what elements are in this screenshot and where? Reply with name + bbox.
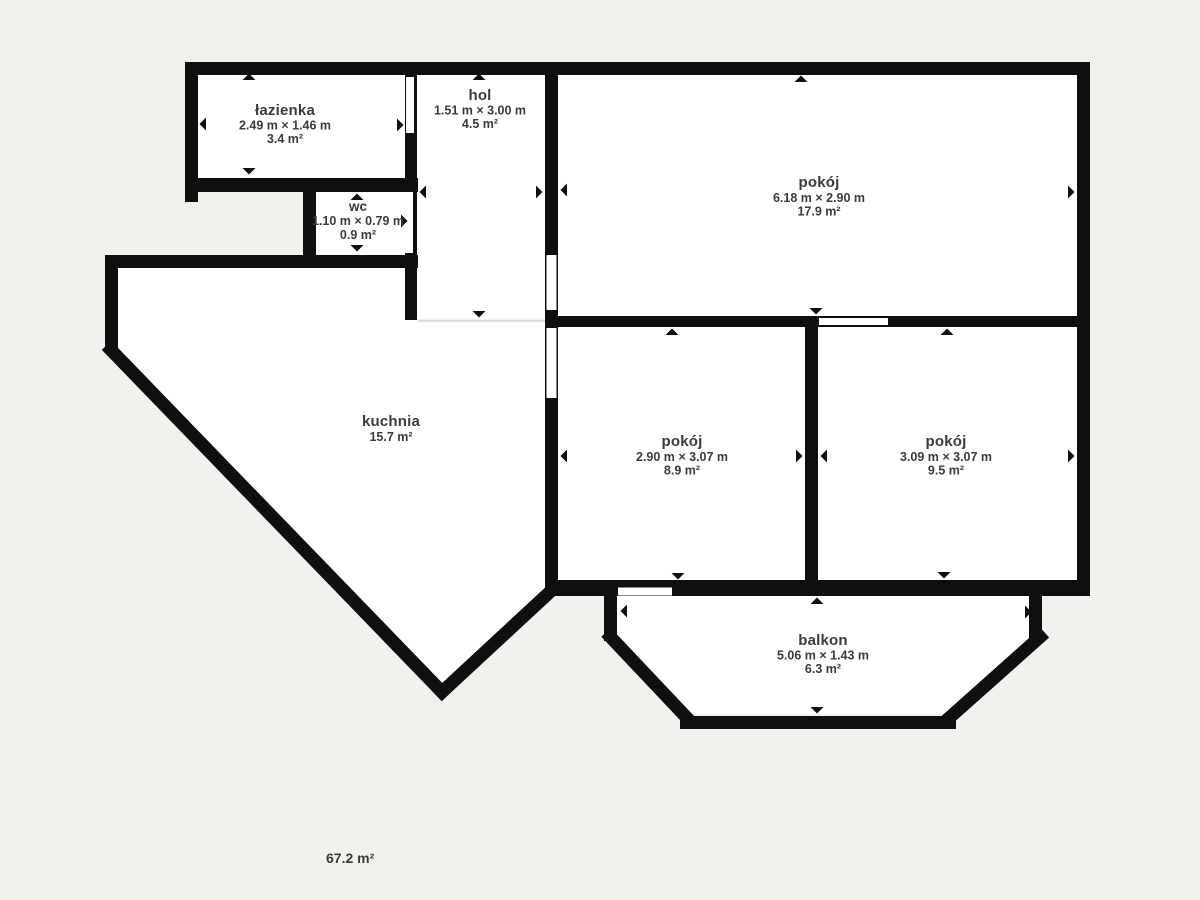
wall <box>185 178 418 192</box>
wall <box>1029 596 1042 641</box>
room-dimensions: 5.06 m × 1.43 m <box>777 649 869 663</box>
total-area-label: 67.2 m² <box>326 850 375 866</box>
room-dimensions: 1.51 m × 3.00 m <box>434 104 526 118</box>
wall <box>680 716 956 729</box>
floor-plan-canvas: łazienka 2.49 m × 1.46 m 3.4 m² wc 1.10 … <box>0 0 1200 900</box>
room-area: 0.9 m² <box>340 228 376 242</box>
room-dimensions: 2.49 m × 1.46 m <box>239 119 331 133</box>
door-opening <box>618 588 672 596</box>
floor-plan: łazienka 2.49 m × 1.46 m 3.4 m² wc 1.10 … <box>0 0 1200 900</box>
wall <box>805 327 818 596</box>
door-opening <box>819 318 888 325</box>
wall <box>185 62 1090 75</box>
door-opening <box>547 328 557 398</box>
door-opening <box>405 192 413 253</box>
wall <box>105 255 418 268</box>
room-dimensions: 3.09 m × 3.07 m <box>900 450 992 464</box>
room-area: 4.5 m² <box>462 117 498 131</box>
room-label-kuchnia: kuchnia 15.7 m² <box>362 413 421 444</box>
room-name: wc <box>348 199 368 214</box>
room-name: balkon <box>798 632 848 649</box>
room-dimensions: 6.18 m × 2.90 m <box>773 191 865 205</box>
room-area: 17.9 m² <box>797 205 840 219</box>
room-name: pokój <box>926 433 967 450</box>
room-name: kuchnia <box>362 413 421 430</box>
room-dimensions: 1.10 m × 0.79 m <box>312 214 404 228</box>
wall <box>545 316 1090 327</box>
door-opening <box>547 255 557 310</box>
room-kuchnia-floor <box>111 261 546 689</box>
room-dimensions: 2.90 m × 3.07 m <box>636 450 728 464</box>
room-area: 3.4 m² <box>267 132 303 146</box>
wall <box>1077 62 1090 596</box>
room-name: hol <box>468 87 491 104</box>
room-name: pokój <box>799 174 840 191</box>
room-name: łazienka <box>255 102 315 119</box>
door-opening <box>406 77 414 133</box>
room-area: 6.3 m² <box>805 662 841 676</box>
wall <box>105 255 118 352</box>
open-passage-line <box>418 320 545 323</box>
room-area: 8.9 m² <box>664 464 700 478</box>
room-name: pokój <box>662 433 703 450</box>
room-area: 9.5 m² <box>928 464 964 478</box>
room-area: 15.7 m² <box>369 430 412 444</box>
